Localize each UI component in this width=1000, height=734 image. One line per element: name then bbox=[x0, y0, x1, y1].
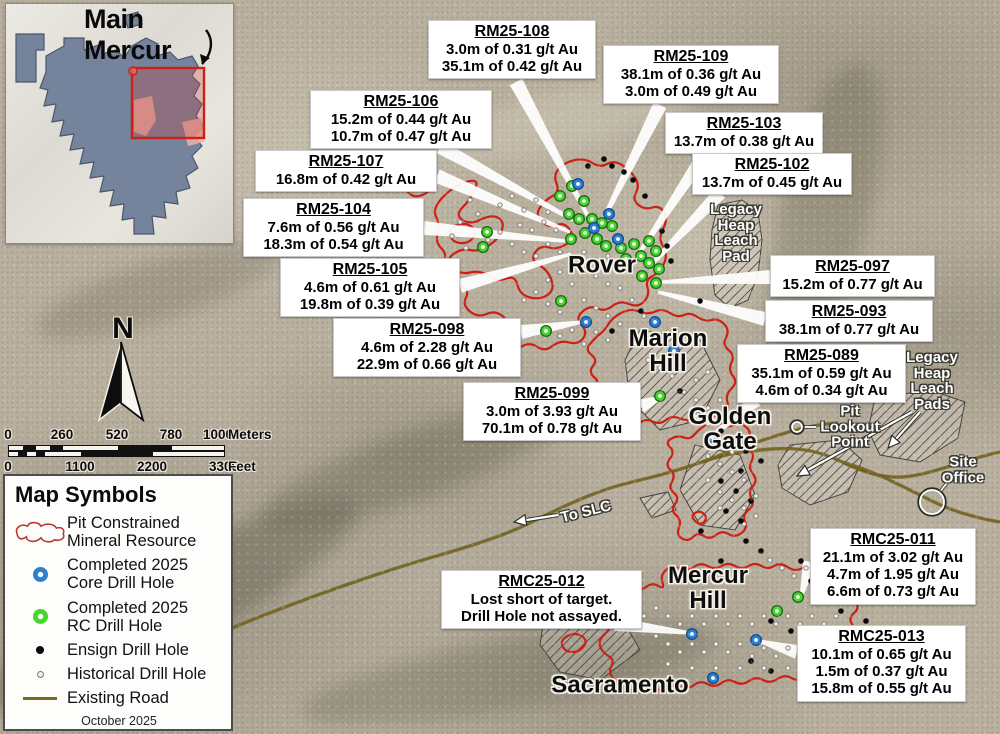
historical-drill-hole bbox=[510, 194, 514, 198]
core-drill-hole bbox=[616, 237, 620, 241]
callout-RMC25-011: RMC25-01121.1m of 3.02 g/t Au4.7m of 1.9… bbox=[810, 528, 976, 605]
inset-map: Main Mercur bbox=[5, 3, 234, 244]
ensign-drill-hole bbox=[698, 528, 704, 534]
ensign-drill-hole bbox=[738, 468, 744, 474]
callout-result-line: 6.6m of 0.73 g/t Au bbox=[814, 583, 972, 600]
north-arrow: N bbox=[88, 312, 158, 427]
rc-drill-hole bbox=[567, 212, 571, 216]
historical-drill-hole bbox=[690, 666, 694, 670]
callout-id: RM25-104 bbox=[247, 201, 420, 219]
historical-drill-hole bbox=[522, 298, 526, 302]
place-label-sacramento: Sacramento bbox=[551, 674, 688, 699]
rc-drill-hole bbox=[569, 237, 573, 241]
callout-id: RM25-089 bbox=[741, 347, 902, 365]
callout-id: RM25-106 bbox=[314, 93, 488, 111]
historical-drill-hole bbox=[666, 642, 670, 646]
callout-result-line: 10.1m of 0.65 g/t Au bbox=[801, 646, 962, 663]
ensign-drill-hole bbox=[758, 458, 764, 464]
callout-id: RMC25-011 bbox=[814, 531, 972, 549]
callout-RM25-108: RM25-1083.0m of 0.31 g/t Au35.1m of 0.42… bbox=[428, 20, 596, 79]
historical-drill-hole bbox=[690, 642, 694, 646]
scale-tick-meters: 0 bbox=[4, 427, 12, 442]
historical-drill-hole bbox=[714, 642, 718, 646]
historical-drill-hole bbox=[666, 614, 670, 618]
legend-item-rc-hole: Completed 2025 RC Drill Hole bbox=[13, 599, 225, 635]
historical-drill-hole bbox=[546, 242, 550, 246]
scale-tick-feet: 0 bbox=[4, 459, 12, 474]
legend-item-label: Completed 2025 Core Drill Hole bbox=[67, 556, 188, 592]
north-label: N bbox=[112, 312, 134, 346]
historical-drill-hole bbox=[618, 286, 622, 290]
ensign-drill-hole bbox=[743, 538, 749, 544]
scale-unit-meters: Meters bbox=[228, 427, 272, 442]
ensign-drill-hole bbox=[768, 618, 774, 624]
historical-drill-hole bbox=[458, 220, 462, 224]
historical-drill-hole bbox=[792, 574, 796, 578]
ensign-drill-hole bbox=[838, 608, 844, 614]
historical-drill-hole bbox=[554, 228, 558, 232]
historical-drill-hole bbox=[606, 338, 610, 342]
rc-drill-hole bbox=[647, 261, 651, 265]
callout-result-line: 3.0m of 0.31 g/t Au bbox=[432, 41, 592, 58]
historical-drill-hole bbox=[730, 470, 734, 474]
historical-drill-hole bbox=[762, 646, 766, 650]
historical-drill-hole bbox=[786, 666, 790, 670]
historical-drill-hole bbox=[450, 234, 454, 238]
ensign-drill-hole bbox=[677, 388, 683, 394]
scale-tick-feet: 1100 bbox=[65, 459, 94, 474]
callout-id: RM25-097 bbox=[774, 258, 931, 276]
ensign-drill-hole bbox=[638, 308, 644, 314]
historical-drill-hole bbox=[594, 306, 598, 310]
callout-result-line: 22.9m of 0.66 g/t Au bbox=[337, 356, 517, 373]
callout-result-line: 4.7m of 1.95 g/t Au bbox=[814, 566, 972, 583]
callout-RMC25-012: RMC25-012Lost short of target.Drill Hole… bbox=[441, 570, 642, 629]
ensign-drill-hole bbox=[642, 193, 648, 199]
callout-RM25-089: RM25-08935.1m of 0.59 g/t Au4.6m of 0.34… bbox=[737, 344, 906, 403]
place-label-marion: Marion Hill bbox=[629, 327, 708, 377]
historical-drill-hole bbox=[486, 238, 490, 242]
historical-drill-hole bbox=[750, 622, 754, 626]
ensign-drill-hole bbox=[621, 169, 627, 175]
ensign-drill-hole bbox=[723, 508, 729, 514]
legend-panel: Map Symbols Pit Constrained Mineral Reso… bbox=[3, 474, 233, 731]
callout-RM25-103: RM25-10313.7m of 0.38 g/t Au bbox=[665, 112, 823, 154]
callout-id: RM25-105 bbox=[284, 261, 456, 279]
rc-drill-hole bbox=[610, 224, 614, 228]
callout-RM25-107: RM25-10716.8m of 0.42 g/t Au bbox=[255, 150, 437, 192]
ensign-drill-hole bbox=[659, 228, 665, 234]
historical-drill-hole bbox=[714, 666, 718, 670]
historical-drill-hole bbox=[754, 514, 758, 518]
callout-result-line: 35.1m of 0.42 g/t Au bbox=[432, 58, 592, 75]
rc-drill-hole bbox=[595, 237, 599, 241]
legend-item-label: Ensign Drill Hole bbox=[67, 641, 189, 659]
rc-drill-hole bbox=[544, 329, 548, 333]
place-label-legacy: Legacy Heap Leach Pad bbox=[710, 202, 762, 264]
historical-hole-icon bbox=[37, 671, 44, 678]
historical-drill-hole bbox=[694, 378, 698, 382]
ensign-drill-hole bbox=[768, 668, 774, 674]
historical-drill-hole bbox=[718, 462, 722, 466]
ensign-hole-icon bbox=[13, 646, 67, 654]
scale-tick-meters: 260 bbox=[51, 427, 74, 442]
historical-drill-hole bbox=[762, 666, 766, 670]
historical-drill-hole bbox=[750, 654, 754, 658]
historical-drill-hole bbox=[786, 614, 790, 618]
callout-id: RMC25-012 bbox=[445, 573, 638, 591]
historical-drill-hole bbox=[534, 290, 538, 294]
historical-drill-hole bbox=[522, 208, 526, 212]
ensign-hole-icon bbox=[36, 646, 44, 654]
core-drill-hole bbox=[653, 320, 657, 324]
historical-drill-hole bbox=[642, 614, 646, 618]
callout-result-line: 38.1m of 0.77 g/t Au bbox=[769, 321, 929, 338]
core-drill-hole bbox=[690, 632, 694, 636]
historical-drill-hole bbox=[534, 254, 538, 258]
historical-drill-hole bbox=[834, 614, 838, 618]
rc-drill-hole bbox=[604, 244, 608, 248]
historical-drill-hole bbox=[530, 228, 534, 232]
callout-RM25-093: RM25-09338.1m of 0.77 g/t Au bbox=[765, 300, 933, 342]
historical-drill-hole bbox=[558, 250, 562, 254]
historical-drill-hole bbox=[468, 198, 472, 202]
scale-bar-feet bbox=[8, 451, 225, 457]
callout-result-line: 19.8m of 0.39 g/t Au bbox=[284, 296, 456, 313]
legend-date: October 2025 bbox=[13, 714, 225, 728]
pit-squiggle bbox=[17, 523, 64, 542]
historical-drill-hole bbox=[678, 650, 682, 654]
rc-drill-hole bbox=[658, 394, 662, 398]
core-drill-hole bbox=[754, 638, 758, 642]
scale-segment bbox=[36, 452, 45, 456]
scale-unit-feet: Feet bbox=[228, 459, 256, 474]
historical-drill-hole bbox=[570, 282, 574, 286]
core-hole-icon bbox=[13, 567, 67, 582]
historical-drill-hole bbox=[642, 314, 646, 318]
historical-drill-hole bbox=[618, 322, 622, 326]
legend-item-road: Existing Road bbox=[13, 689, 225, 707]
core-drill-hole bbox=[711, 676, 715, 680]
historical-drill-hole bbox=[594, 330, 598, 334]
historical-drill-hole bbox=[542, 220, 546, 224]
rc-drill-hole bbox=[558, 194, 562, 198]
rc-drill-hole bbox=[619, 246, 623, 250]
arrowhead bbox=[514, 515, 527, 526]
historical-drill-hole bbox=[768, 558, 772, 562]
historical-drill-hole bbox=[654, 634, 658, 638]
historical-drill-hole bbox=[546, 302, 550, 306]
core-drill-hole bbox=[592, 226, 596, 230]
historical-drill-hole bbox=[718, 490, 722, 494]
callout-result-line: 13.7m of 0.38 g/t Au bbox=[669, 133, 819, 150]
callout-id: RM25-102 bbox=[696, 156, 848, 174]
ensign-drill-hole bbox=[748, 498, 754, 504]
rc-drill-hole bbox=[582, 199, 586, 203]
historical-hole-icon bbox=[13, 671, 67, 678]
historical-drill-hole bbox=[498, 203, 502, 207]
ensign-drill-hole bbox=[668, 258, 674, 264]
callout-result-line: Drill Hole not assayed. bbox=[445, 608, 638, 625]
callout-result-line: 3.0m of 3.93 g/t Au bbox=[467, 403, 637, 420]
historical-drill-hole bbox=[558, 310, 562, 314]
inset-marker bbox=[129, 67, 137, 75]
callout-result-line: 10.7m of 0.47 g/t Au bbox=[314, 128, 488, 145]
core-drill-hole bbox=[584, 320, 588, 324]
rc-drill-hole bbox=[600, 221, 604, 225]
rc-drill-hole bbox=[640, 274, 644, 278]
historical-drill-hole bbox=[522, 250, 526, 254]
callout-id: RM25-093 bbox=[769, 303, 929, 321]
scale-segment bbox=[50, 446, 63, 450]
core-hole-icon bbox=[33, 567, 48, 582]
rc-drill-hole bbox=[657, 267, 661, 271]
callout-id: RMC25-013 bbox=[801, 628, 962, 646]
historical-drill-hole bbox=[546, 278, 550, 282]
legend-item-label: Historical Drill Hole bbox=[67, 665, 206, 683]
legend-item-historical-hole: Historical Drill Hole bbox=[13, 665, 225, 683]
callout-RM25-099: RM25-0993.0m of 3.93 g/t Au70.1m of 0.78… bbox=[463, 382, 641, 441]
historical-drill-hole bbox=[498, 230, 502, 234]
core-drill-hole bbox=[576, 182, 580, 186]
map-canvas: RoverMarion HillGolden GateMercur HillSa… bbox=[0, 0, 1000, 734]
rc-drill-hole bbox=[485, 230, 489, 234]
historical-drill-hole bbox=[810, 614, 814, 618]
historical-drill-hole bbox=[726, 622, 730, 626]
callout-result-line: 4.6m of 2.28 g/t Au bbox=[337, 339, 517, 356]
rc-drill-hole bbox=[775, 609, 779, 613]
claim-block bbox=[16, 34, 44, 82]
scale-segment bbox=[23, 446, 36, 450]
callout-RM25-098: RM25-0984.6m of 2.28 g/t Au22.9m of 0.66… bbox=[333, 318, 521, 377]
callout-RM25-106: RM25-10615.2m of 0.44 g/t Au10.7m of 0.4… bbox=[310, 90, 492, 149]
callout-id: RM25-108 bbox=[432, 23, 592, 41]
scale-segment bbox=[118, 446, 172, 450]
historical-drill-hole bbox=[738, 642, 742, 646]
callout-result-line: 13.7m of 0.45 g/t Au bbox=[696, 174, 848, 191]
historical-drill-hole bbox=[738, 614, 742, 618]
callout-result-line: Lost short of target. bbox=[445, 591, 638, 608]
historical-drill-hole bbox=[780, 566, 784, 570]
historical-drill-hole bbox=[774, 654, 778, 658]
core-drill-hole bbox=[607, 212, 611, 216]
rc-hole-icon bbox=[33, 609, 48, 624]
callout-result-line: 18.3m of 0.54 g/t Au bbox=[247, 236, 420, 253]
place-label-golden: Golden Gate bbox=[689, 405, 772, 455]
historical-drill-hole bbox=[714, 614, 718, 618]
historical-drill-hole bbox=[742, 478, 746, 482]
historical-drill-hole bbox=[694, 398, 698, 402]
hatch-area bbox=[640, 492, 676, 518]
ensign-drill-hole bbox=[748, 658, 754, 664]
scale-tick-meters: 780 bbox=[160, 427, 183, 442]
legend-title: Map Symbols bbox=[15, 482, 225, 508]
historical-drill-hole bbox=[630, 298, 634, 302]
historical-drill-hole bbox=[706, 478, 710, 482]
ensign-drill-hole bbox=[718, 478, 724, 484]
ensign-drill-hole bbox=[863, 618, 869, 624]
ensign-drill-hole bbox=[609, 163, 615, 169]
historical-drill-hole bbox=[718, 506, 722, 510]
historical-drill-hole bbox=[718, 398, 722, 402]
ensign-drill-hole bbox=[738, 518, 744, 524]
historical-drill-hole bbox=[804, 566, 808, 570]
callout-id: RM25-103 bbox=[669, 115, 819, 133]
rc-drill-hole bbox=[583, 231, 587, 235]
rc-drill-hole bbox=[639, 254, 643, 258]
callout-RM25-105: RM25-1054.6m of 0.61 g/t Au19.8m of 0.39… bbox=[280, 258, 460, 317]
road-icon bbox=[23, 697, 57, 700]
legend-item-ensign-hole: Ensign Drill Hole bbox=[13, 641, 225, 659]
historical-drill-hole bbox=[582, 298, 586, 302]
rc-drill-hole bbox=[654, 249, 658, 253]
rc-drill-hole bbox=[647, 239, 651, 243]
callout-result-line: 70.1m of 0.78 g/t Au bbox=[467, 420, 637, 437]
place-label-site: Site Office bbox=[942, 454, 985, 485]
rc-drill-hole bbox=[796, 595, 800, 599]
ensign-drill-hole bbox=[609, 328, 615, 334]
callout-result-line: 21.1m of 3.02 g/t Au bbox=[814, 549, 972, 566]
historical-drill-hole bbox=[518, 223, 522, 227]
pit-outline-icon bbox=[13, 515, 67, 549]
historical-drill-hole bbox=[546, 210, 550, 214]
historical-drill-hole bbox=[570, 328, 574, 332]
legend-item-core-hole: Completed 2025 Core Drill Hole bbox=[13, 556, 225, 592]
callout-id: RM25-109 bbox=[607, 48, 775, 66]
historical-drill-hole bbox=[702, 622, 706, 626]
historical-drill-hole bbox=[742, 506, 746, 510]
callout-result-line: 15.8m of 0.55 g/t Au bbox=[801, 680, 962, 697]
historical-drill-hole bbox=[730, 498, 734, 502]
historical-drill-hole bbox=[558, 334, 562, 338]
historical-drill-hole bbox=[726, 650, 730, 654]
historical-drill-hole bbox=[582, 342, 586, 346]
scale-segment bbox=[81, 452, 153, 456]
legend-item-label: Existing Road bbox=[67, 689, 169, 707]
ensign-drill-hole bbox=[630, 177, 636, 183]
callout-result-line: 4.6m of 0.61 g/t Au bbox=[284, 279, 456, 296]
historical-drill-hole bbox=[666, 662, 670, 666]
callout-RM25-097: RM25-09715.2m of 0.77 g/t Au bbox=[770, 255, 935, 297]
ensign-drill-hole bbox=[733, 488, 739, 494]
callout-result-line: 16.8m of 0.42 g/t Au bbox=[259, 171, 433, 188]
ensign-drill-hole bbox=[758, 548, 764, 554]
callout-result-line: 15.2m of 0.77 g/t Au bbox=[774, 276, 931, 293]
historical-drill-hole bbox=[654, 606, 658, 610]
callout-id: RM25-099 bbox=[467, 385, 637, 403]
callout-result-line: 38.1m of 0.36 g/t Au bbox=[607, 66, 775, 83]
place-label-mercur: Mercur Hill bbox=[668, 564, 748, 614]
ensign-drill-hole bbox=[585, 163, 591, 169]
callout-id: RM25-107 bbox=[259, 153, 433, 171]
historical-drill-hole bbox=[690, 614, 694, 618]
rc-drill-hole bbox=[590, 217, 594, 221]
place-label-pit: Pit Lookout Point bbox=[820, 404, 879, 451]
rc-drill-hole bbox=[481, 245, 485, 249]
historical-drill-hole bbox=[754, 494, 758, 498]
legend-item-pit-outline: Pit Constrained Mineral Resource bbox=[13, 514, 225, 550]
inset-title: Main Mercur bbox=[84, 4, 233, 66]
legend-item-label: Pit Constrained Mineral Resource bbox=[67, 514, 196, 550]
callout-result-line: 3.0m of 0.49 g/t Au bbox=[607, 83, 775, 100]
historical-drill-hole bbox=[678, 622, 682, 626]
historical-drill-hole bbox=[464, 246, 468, 250]
callout-id: RM25-098 bbox=[337, 321, 517, 339]
callout-RMC25-013: RMC25-01310.1m of 0.65 g/t Au1.5m of 0.3… bbox=[797, 625, 966, 702]
scale-bar: 02605207801000Meters0110022003300Feet bbox=[0, 425, 262, 477]
rc-drill-hole bbox=[559, 299, 563, 303]
main-mercur-extent-box bbox=[132, 68, 204, 138]
historical-drill-hole bbox=[606, 314, 610, 318]
historical-drill-hole bbox=[476, 212, 480, 216]
rc-drill-hole bbox=[654, 281, 658, 285]
historical-drill-hole bbox=[702, 650, 706, 654]
road-icon bbox=[13, 697, 67, 700]
scale-segment bbox=[18, 452, 27, 456]
ensign-drill-hole bbox=[788, 628, 794, 634]
callout-RM25-109: RM25-10938.1m of 0.36 g/t Au3.0m of 0.49… bbox=[603, 45, 779, 104]
callout-result-line: 1.5m of 0.37 g/t Au bbox=[801, 663, 962, 680]
place-label-legacy: Legacy Heap Leach Pads bbox=[906, 350, 958, 412]
historical-drill-hole bbox=[786, 646, 790, 650]
scale-tick-meters: 520 bbox=[106, 427, 129, 442]
legend-item-label: Completed 2025 RC Drill Hole bbox=[67, 599, 188, 635]
historical-drill-hole bbox=[762, 614, 766, 618]
callout-result-line: 7.6m of 0.56 g/t Au bbox=[247, 219, 420, 236]
callout-RM25-104: RM25-1047.6m of 0.56 g/t Au18.3m of 0.54… bbox=[243, 198, 424, 257]
historical-drill-hole bbox=[774, 622, 778, 626]
ensign-drill-hole bbox=[697, 298, 703, 304]
callout-result-line: 4.6m of 0.34 g/t Au bbox=[741, 382, 902, 399]
rc-drill-hole bbox=[577, 217, 581, 221]
rc-drill-hole bbox=[632, 242, 636, 246]
ensign-drill-hole bbox=[601, 156, 607, 162]
pit-outline-icon bbox=[13, 515, 67, 549]
historical-drill-hole bbox=[510, 242, 514, 246]
callout-result-line: 35.1m of 0.59 g/t Au bbox=[741, 365, 902, 382]
historical-drill-hole bbox=[534, 198, 538, 202]
historical-drill-hole bbox=[738, 666, 742, 670]
place-label-rover: Rover bbox=[568, 254, 636, 279]
legend-items: Pit Constrained Mineral ResourceComplete… bbox=[13, 514, 225, 707]
historical-drill-hole bbox=[606, 282, 610, 286]
scale-tick-feet: 2200 bbox=[137, 459, 167, 474]
rc-hole-icon bbox=[13, 609, 67, 624]
ensign-drill-hole bbox=[664, 243, 670, 249]
ensign-drill-hole bbox=[798, 558, 804, 564]
callout-result-line: 15.2m of 0.44 g/t Au bbox=[314, 111, 488, 128]
callout-RM25-102: RM25-10213.7m of 0.45 g/t Au bbox=[692, 153, 852, 195]
historical-drill-hole bbox=[558, 270, 562, 274]
